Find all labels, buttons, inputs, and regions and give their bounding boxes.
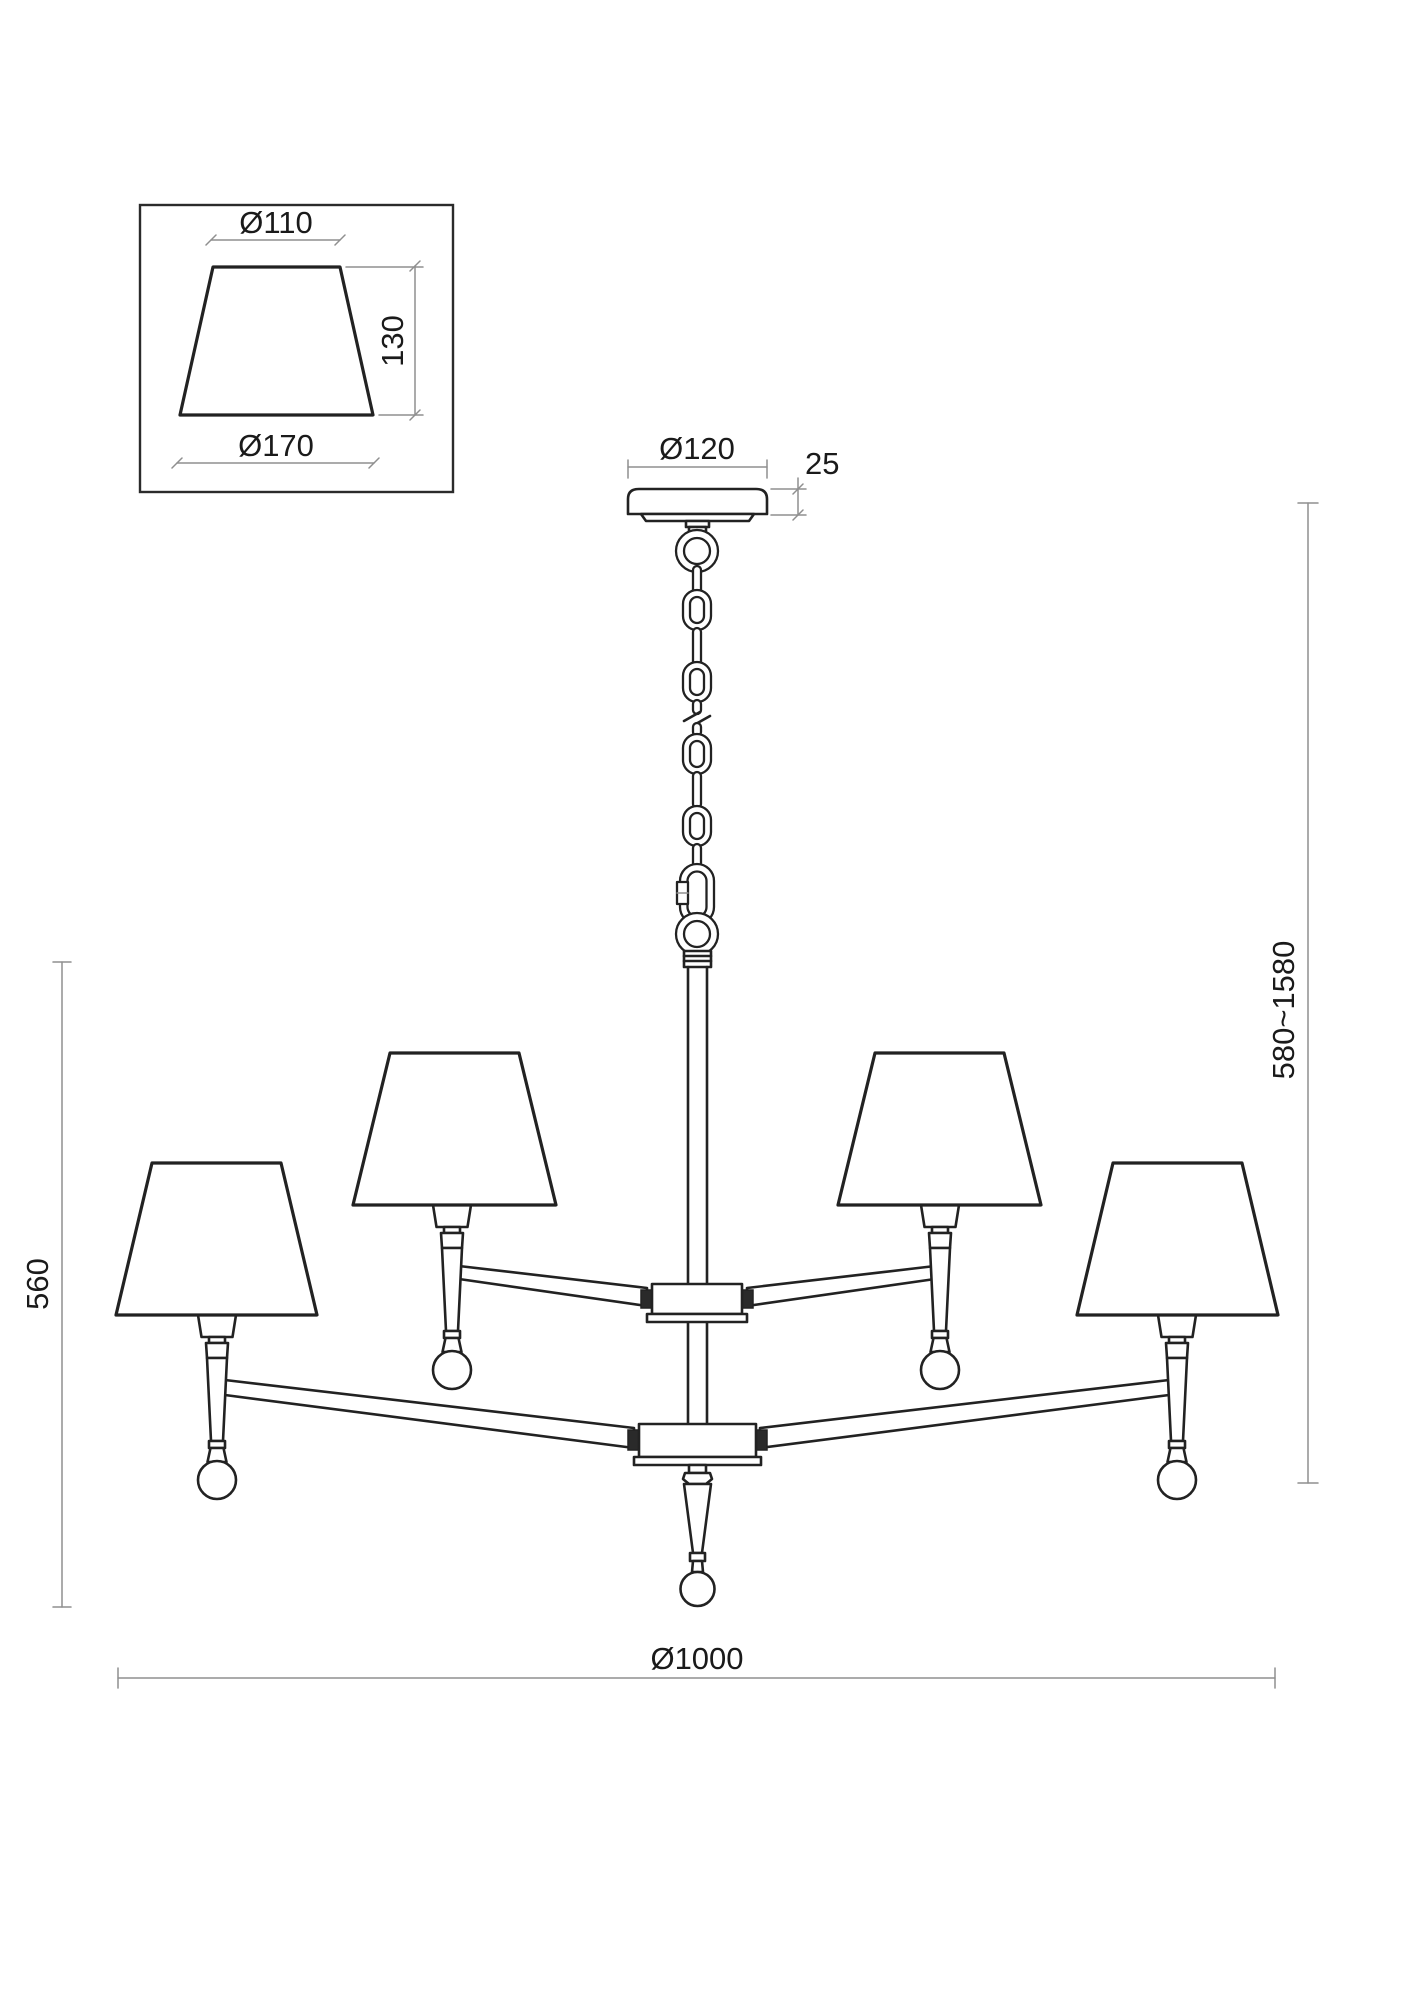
arm-lower-right — [760, 1380, 1169, 1448]
dim-fixture-diameter: Ø1000 — [118, 1641, 1275, 1688]
lampshade-inner-right — [838, 1053, 1041, 1205]
center-finial — [681, 1465, 715, 1606]
candle-outer-right — [1158, 1315, 1196, 1499]
suspension-chain — [676, 530, 718, 967]
lampshade-inner-left — [353, 1053, 556, 1205]
arm-socket-icon — [641, 1290, 652, 1308]
dim-label-fixture-diameter: Ø1000 — [650, 1641, 743, 1676]
dim-label-shade-top-diameter: Ø110 — [239, 205, 313, 240]
dim-label-canopy-diameter: Ø120 — [659, 431, 735, 466]
dim-suspension-height: 580~1580 — [1266, 503, 1318, 1483]
technical-drawing-canvas: Ø110 130 Ø170 Ø120 25 — [0, 0, 1413, 2000]
shade-detail-inset: Ø110 130 Ø170 — [140, 205, 453, 492]
dim-label-shade-bottom-diameter: Ø170 — [238, 428, 314, 463]
arm-socket-icon — [742, 1290, 753, 1308]
dim-shade-top-diameter: Ø110 — [206, 205, 345, 245]
arm-socket-icon — [628, 1430, 639, 1450]
dim-label-canopy-height: 25 — [805, 446, 839, 481]
chandelier-diagram: Ø110 130 Ø170 Ø120 25 — [0, 0, 1413, 2000]
candle-inner-right — [921, 1205, 959, 1389]
detail-shade-outline — [180, 267, 373, 415]
dim-shade-bottom-diameter: Ø170 — [172, 428, 379, 468]
rod-collar — [684, 951, 711, 967]
dim-label-shade-height: 130 — [375, 315, 410, 367]
dim-label-fixture-height: 560 — [20, 1258, 55, 1310]
lampshade-outer-right — [1077, 1163, 1278, 1315]
lampshade-outer-left — [116, 1163, 317, 1315]
arm-upper-left — [459, 1266, 647, 1306]
arm-socket-icon — [756, 1430, 767, 1450]
dim-fixture-height: 560 — [20, 962, 71, 1607]
candle-outer-left — [198, 1315, 236, 1499]
dim-label-suspension-height: 580~1580 — [1266, 941, 1301, 1080]
lower-arm-hub — [628, 1424, 767, 1465]
dim-canopy-height: 25 — [771, 446, 839, 520]
arm-lower-left — [225, 1380, 634, 1448]
dim-canopy-diameter: Ø120 — [628, 431, 767, 478]
candle-inner-left — [433, 1205, 471, 1389]
arm-upper-right — [747, 1266, 935, 1306]
upper-arm-hub — [641, 1284, 753, 1322]
center-rod — [688, 967, 707, 1424]
finial-ball — [681, 1572, 715, 1606]
